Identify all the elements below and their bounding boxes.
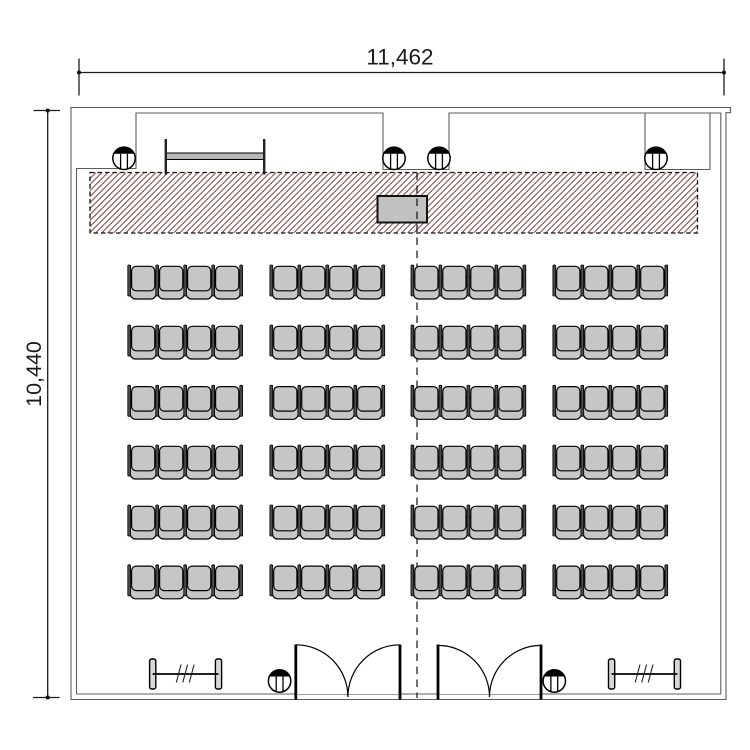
svg-text:10,440: 10,440 xyxy=(22,341,46,407)
svg-text:11,462: 11,462 xyxy=(366,45,433,70)
